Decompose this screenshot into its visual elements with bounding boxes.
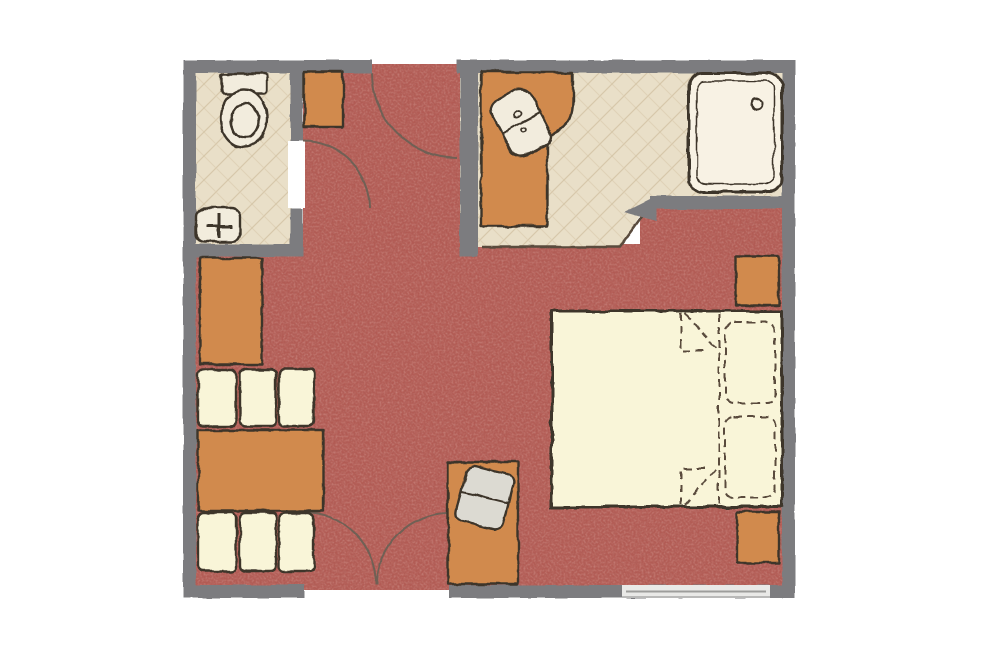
nightstand-top [736,256,779,305]
sofa-top-cushion-1 [198,369,236,426]
window-bottom [622,585,770,598]
bed [552,311,782,507]
wall-shower-bottom [650,196,782,209]
toilet [221,74,267,147]
wall-wc-bottom [190,244,303,257]
hall-cabinet [304,71,343,127]
wall-hall-shower-divider [460,64,478,257]
sofa-bottom-cushion-1 [198,513,236,571]
floorplan-canvas [0,0,992,660]
sofa-bottom-cushion-3 [279,513,314,571]
floorplan-svg [0,0,992,660]
wall-left [183,60,196,598]
wall-right [782,60,795,598]
nightstand-bottom [737,512,779,563]
sofa-top [198,369,314,426]
wall-bottom-left [183,585,305,598]
shower-tray-outer [689,73,782,192]
wc-door-opening [288,141,305,208]
sofa-top-cushion-2 [240,369,276,426]
wall-wc-right-upper [290,64,303,141]
hand-sink [196,208,240,242]
sofa-bottom [198,513,314,571]
sofa-top-cushion-3 [279,369,314,426]
wardrobe [200,258,262,364]
sofa-bottom-cushion-2 [240,513,276,571]
coffee-table [198,430,323,511]
shower-tray [689,73,782,192]
